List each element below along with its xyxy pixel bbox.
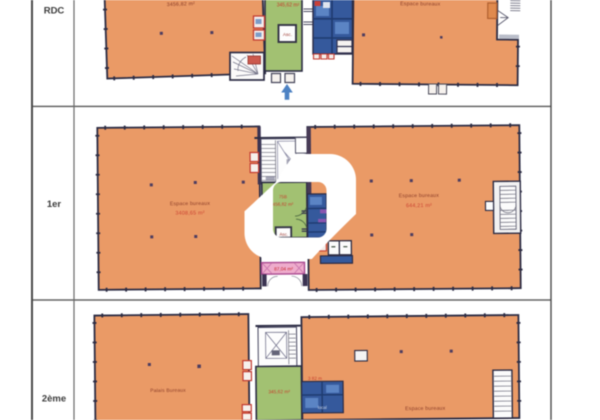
svg-text:Asc.: Asc.: [283, 32, 292, 38]
svg-text:75B: 75B: [279, 194, 287, 199]
svg-text:Espace bureaux: Espace bureaux: [405, 406, 446, 412]
svg-text:RDC: RDC: [44, 6, 65, 17]
svg-text:Palais Bureaux: Palais Bureaux: [150, 388, 186, 394]
svg-text:Espace bureaux: Espace bureaux: [170, 201, 211, 207]
svg-text:456,82 m²: 456,82 m²: [273, 202, 294, 207]
svg-text:2ème: 2ème: [42, 394, 66, 405]
svg-text:3456,82 m²: 3456,82 m²: [167, 1, 195, 8]
svg-text:Espace bureaux: Espace bureaux: [399, 193, 440, 199]
svg-text:3408,65 m²: 3408,65 m²: [175, 210, 204, 216]
svg-text:Espace bureaux: Espace bureaux: [400, 1, 441, 7]
svg-text:3 82 m: 3 82 m: [308, 376, 322, 381]
svg-text:345,62 m²: 345,62 m²: [277, 3, 300, 9]
svg-text:local: local: [318, 405, 327, 410]
svg-text:1er: 1er: [47, 199, 62, 210]
svg-text:345,62 m²: 345,62 m²: [268, 389, 290, 395]
svg-text:Asc.: Asc.: [279, 232, 288, 237]
svg-text:644,21 m²: 644,21 m²: [406, 203, 432, 209]
svg-text:87,04 m²: 87,04 m²: [274, 266, 293, 272]
